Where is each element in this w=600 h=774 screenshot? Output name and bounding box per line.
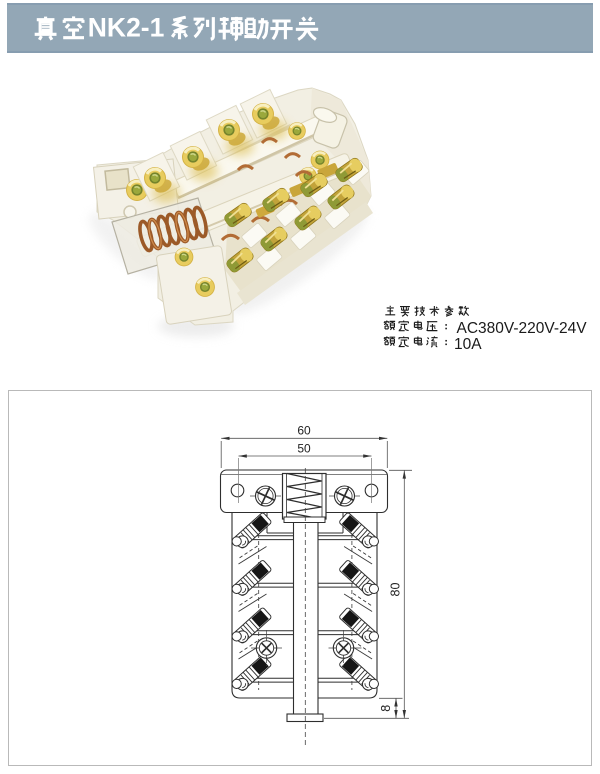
svg-text:8: 8 xyxy=(379,705,393,712)
svg-text:80: 80 xyxy=(389,583,403,597)
